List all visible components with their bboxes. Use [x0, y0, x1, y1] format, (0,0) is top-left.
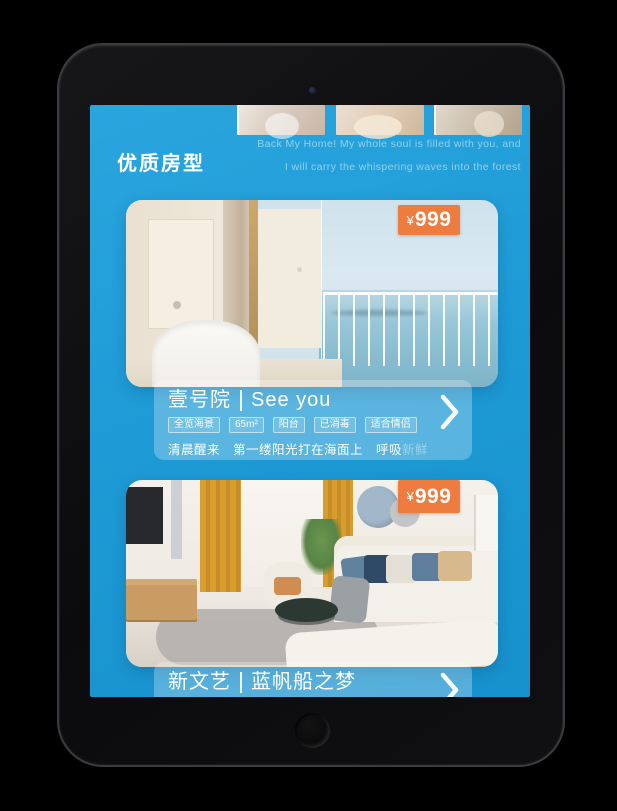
thumbnail-photo-shape [265, 113, 299, 139]
price-currency: ¥ [407, 213, 414, 228]
home-button[interactable] [295, 713, 330, 748]
room-title: 新文艺 蓝帆船之梦 [168, 670, 458, 694]
price-amount: 999 [415, 485, 452, 509]
room-tags: 全览海景 65m² 阳台 已消毒 适合情侣 [168, 417, 458, 433]
room-card-seaview-info[interactable]: 壹号院 See you 全览海景 65m² 阳台 已消毒 适合情侣 清晨醒来 第… [154, 380, 472, 460]
pipe-shape [171, 480, 182, 559]
thumbnail-photo-shape [474, 111, 504, 137]
room-title-cn: 壹号院 [168, 388, 231, 412]
pillow-shape [438, 551, 471, 581]
coffee-table-shape [275, 598, 338, 622]
bathtub-shape [152, 320, 260, 387]
room-description-faded: 新鲜 [402, 443, 428, 457]
price-currency: ¥ [407, 489, 414, 504]
gallery-thumbnail-1[interactable] [237, 105, 325, 135]
price-amount: 999 [415, 208, 452, 232]
price-badge: ¥ 999 [398, 480, 460, 513]
tv-shape [126, 487, 163, 543]
wall-panel-shape [148, 219, 213, 329]
tag-area: 65m² [229, 417, 264, 433]
gallery-thumbnail-2[interactable] [336, 105, 424, 135]
tag-disinfected: 已消毒 [314, 417, 356, 433]
room-title-cn: 新文艺 [168, 670, 231, 694]
thumbnail-photo-shape [354, 115, 402, 139]
title-divider [240, 672, 242, 693]
hero-caption-line2: I will carry the whispering waves into t… [285, 161, 521, 173]
center-wall-shape [258, 209, 321, 347]
chevron-right-icon[interactable] [440, 394, 460, 435]
balcony-railing-shape [323, 295, 498, 366]
room-photo-livingroom: ¥ 999 [126, 480, 498, 667]
room-card-livingroom-info[interactable]: 新文艺 蓝帆船之梦 [154, 662, 472, 697]
page-background: Back My Home! My whole soul is filled wi… [0, 0, 617, 811]
room-card-livingroom[interactable]: ¥ 999 [126, 480, 498, 667]
room-title-en: See you [251, 388, 331, 412]
throw-blanket-shape [328, 575, 370, 624]
tv-cabinet-shape [126, 579, 197, 622]
room-title: 壹号院 See you [168, 388, 458, 412]
room-description-main: 清晨醒来 第一缕阳光打在海面上 呼吸 [168, 443, 402, 457]
hero-caption-line1: Back My Home! My whole soul is filled wi… [257, 138, 521, 150]
tag-balcony: 阳台 [273, 417, 305, 433]
armchair-pillow-shape [274, 577, 301, 594]
price-badge: ¥ 999 [398, 205, 460, 235]
room-title-en: 蓝帆船之梦 [251, 670, 356, 694]
app-screen: Back My Home! My whole soul is filled wi… [90, 105, 530, 697]
faucet-shape [173, 301, 181, 309]
front-camera-icon [309, 87, 316, 94]
tag-sea-view: 全览海景 [168, 417, 220, 433]
room-description: 清晨醒来 第一缕阳光打在海面上 呼吸新鲜 [168, 439, 458, 458]
section-title: 优质房型 [117, 147, 205, 176]
picture-frame-shape [474, 495, 498, 551]
tablet-device-frame: Back My Home! My whole soul is filled wi… [57, 43, 565, 767]
chevron-right-icon[interactable] [440, 672, 460, 697]
title-divider [240, 390, 242, 411]
curtain-left-shape [200, 480, 241, 592]
tag-couples: 适合情侣 [365, 417, 417, 433]
gallery-thumbnail-3[interactable] [434, 105, 522, 135]
room-card-seaview[interactable]: ¥ 999 [126, 200, 498, 387]
room-photo-seaview: ¥ 999 [126, 200, 498, 387]
